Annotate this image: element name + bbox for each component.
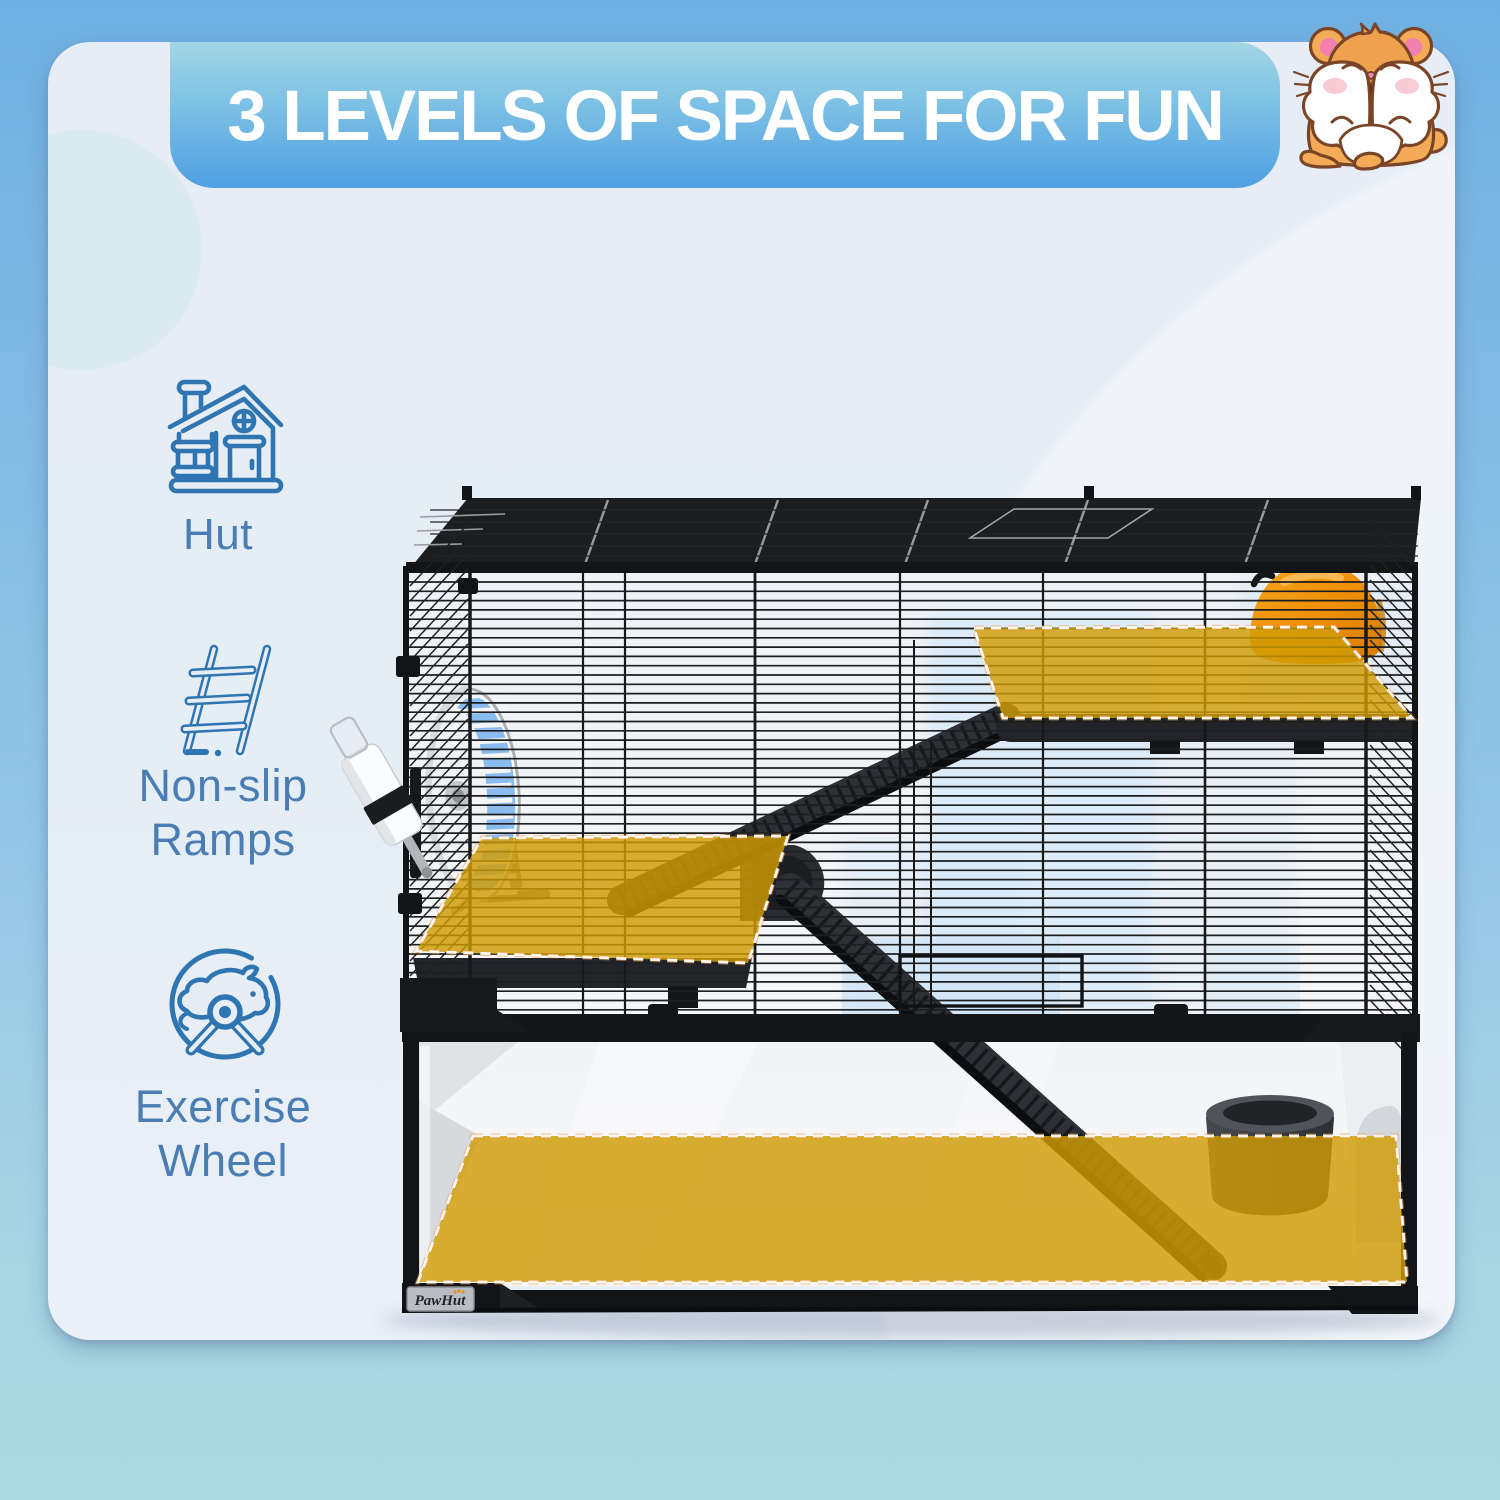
svg-text:PawHut: PawHut	[415, 1293, 467, 1309]
